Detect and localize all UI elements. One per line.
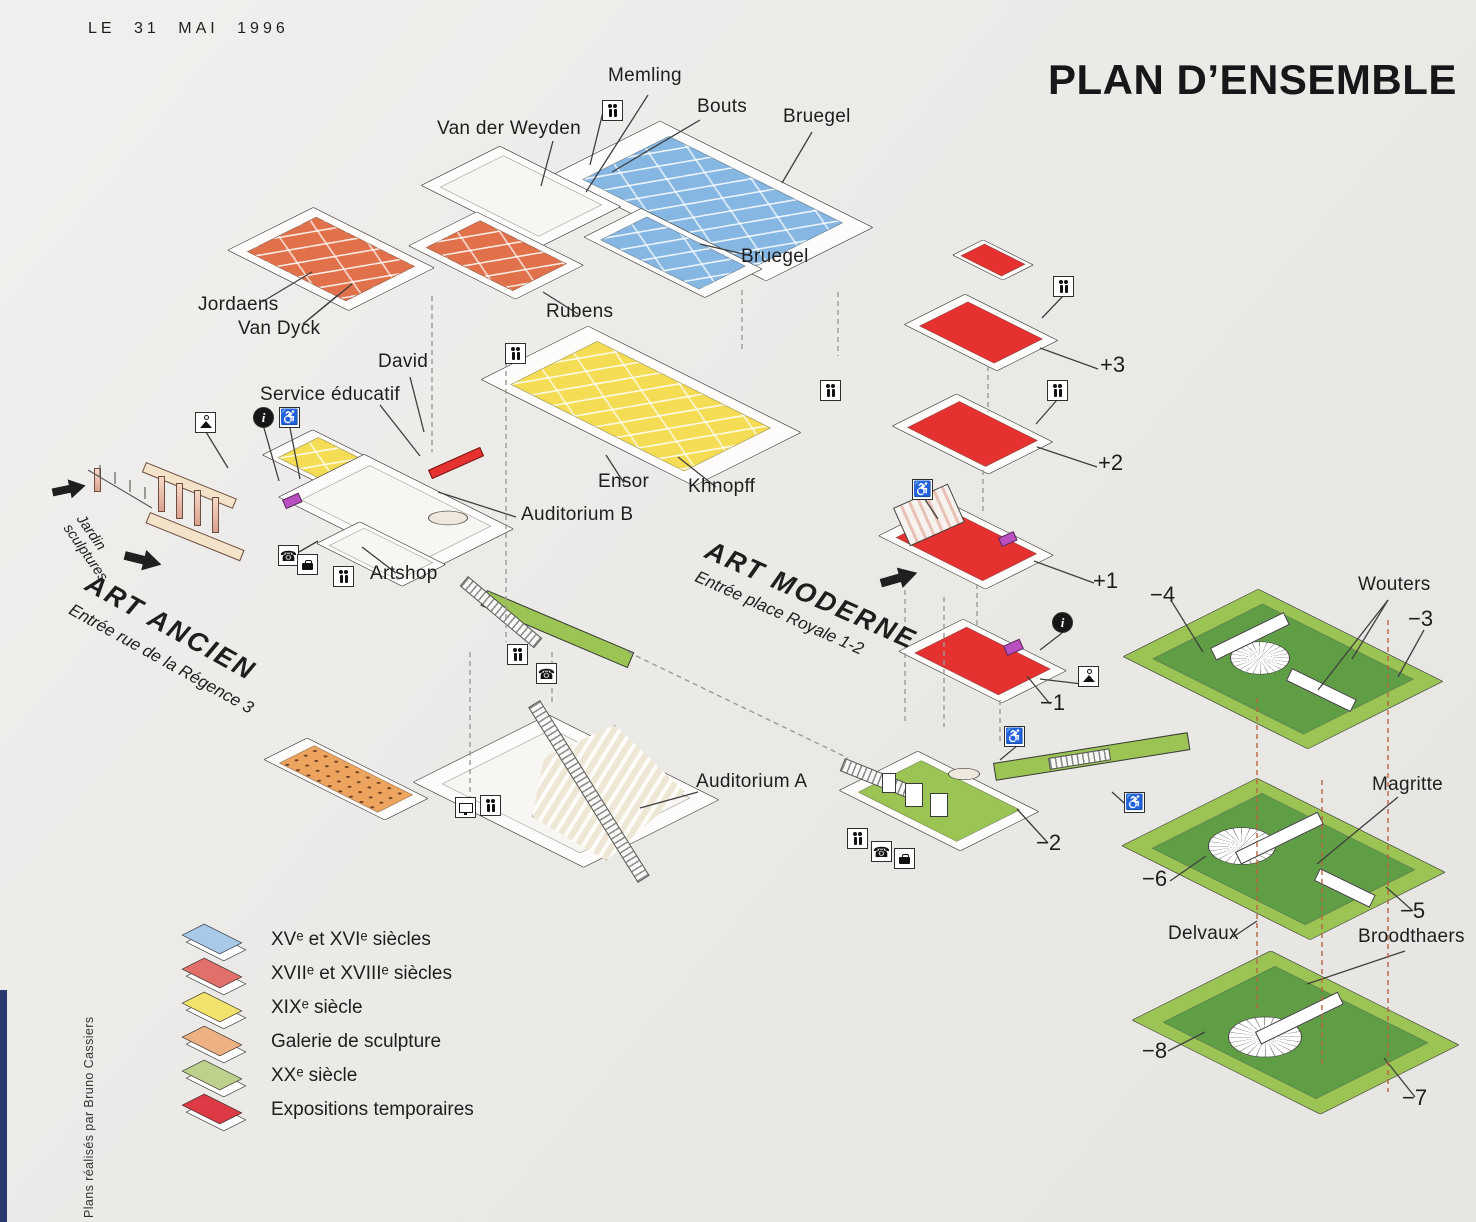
projection-icon	[455, 797, 476, 818]
floor-plus3-fill	[919, 301, 1044, 363]
person-glyph	[340, 575, 343, 583]
phone-icon: ☎	[871, 841, 892, 862]
wheelchair-icon: ♿	[1004, 726, 1025, 747]
room-label-bouts: Bouts	[697, 97, 747, 117]
wc-icon	[333, 566, 354, 587]
credit-line: Plans réalisés par Bruno Cassiers	[82, 1017, 96, 1218]
plan-densemble-page: LE 31 MAI 1996 PLAN D’ENSEMBLE Plans réa…	[0, 0, 1476, 1222]
bag-glyph	[302, 563, 313, 570]
facade-column	[212, 497, 219, 533]
person-glyph	[517, 352, 520, 360]
room-label-auditorium-b: Auditorium B	[521, 505, 633, 525]
room-label-delvaux: Delvaux	[1168, 924, 1239, 944]
sculpture-colonnade-floor	[279, 746, 412, 813]
page-title: PLAN D’ENSEMBLE	[1048, 56, 1457, 104]
room-label-artshop: Artshop	[370, 564, 438, 584]
floor-label-minus8: −8	[1142, 1038, 1167, 1064]
info-icon: i	[1052, 612, 1073, 633]
room-label-service-educatif: Service éducatif	[260, 385, 400, 405]
screen-glyph	[459, 803, 473, 813]
floor-plus3-plate	[904, 294, 1059, 371]
hanger-glyph	[1083, 675, 1095, 682]
room-label-bruegel-lower: Bruegel	[741, 247, 809, 267]
person-glyph	[1065, 285, 1068, 293]
person-glyph	[614, 109, 617, 117]
person-glyph	[487, 804, 490, 812]
phone-icon: ☎	[278, 545, 299, 566]
floor-label-minus4: −4	[1150, 582, 1175, 608]
person-glyph	[512, 352, 515, 360]
bag-glyph	[899, 857, 910, 864]
person-glyph	[609, 109, 612, 117]
expo-red-strip	[428, 447, 484, 479]
legend-label-expositions: Expositions temporaires	[271, 1099, 474, 1121]
sculpture-colonnade-plate	[263, 738, 428, 821]
room-label-jordaens: Jordaens	[198, 295, 279, 315]
person-glyph	[1059, 389, 1062, 397]
wc-icon	[602, 100, 623, 121]
person-glyph	[514, 653, 517, 661]
room-label-bruegel-top: Bruegel	[783, 107, 851, 127]
room-label-broodthaers: Broodthaers	[1358, 927, 1465, 947]
hanger-glyph	[200, 421, 212, 428]
floor-label-plus1: +1	[1093, 568, 1118, 594]
person-glyph	[1060, 285, 1063, 293]
shop-bag-icon	[297, 554, 318, 575]
room-label-magritte: Magritte	[1372, 775, 1443, 795]
floor-plus2-fill	[907, 401, 1037, 466]
person-glyph	[827, 389, 830, 397]
person-glyph	[854, 837, 857, 845]
floor-label-minus6: −6	[1142, 866, 1167, 892]
entrance-arrow-icon	[877, 561, 920, 595]
scan-edge-strip	[0, 990, 7, 1222]
wheelchair-icon: ♿	[912, 479, 933, 500]
minus2-partition	[930, 793, 948, 817]
garden-sculptures-label: Jardin sculptures	[60, 512, 131, 594]
magritte-floor	[1152, 793, 1416, 925]
floor-label-minus3: −3	[1408, 606, 1433, 632]
magritte-plate	[1121, 778, 1446, 940]
wc-icon	[820, 380, 841, 401]
auditorium-b-stage	[428, 511, 468, 525]
wc-icon	[507, 644, 528, 665]
person-glyph	[492, 804, 495, 812]
room-label-van-dyck: Van Dyck	[238, 319, 320, 339]
wc-icon	[480, 795, 501, 816]
room-label-khnopff: Khnopff	[688, 477, 755, 497]
minus2-rotunda	[948, 768, 980, 780]
floor-label-minus2: −2	[1036, 830, 1061, 856]
room-label-david: David	[378, 352, 428, 372]
wheelchair-icon: ♿	[279, 407, 300, 428]
facade-column	[158, 476, 165, 512]
floor-label-minus1: −1	[1040, 690, 1065, 716]
minus2-partition	[882, 773, 896, 793]
yellow-main-floor	[511, 341, 772, 471]
room-label-memling: Memling	[608, 66, 682, 86]
floor-label-minus5: −5	[1400, 898, 1425, 924]
legend: XVᵉ et XVIᵉ siècles XVIIᵉ et XVIIIᵉ sièc…	[185, 915, 525, 1125]
floor-minus1-fill	[914, 627, 1050, 695]
person-glyph	[345, 575, 348, 583]
legend-label-xvii-xviii: XVIIᵉ et XVIIIᵉ siècles	[271, 963, 452, 985]
floor-label-plus3: +3	[1100, 352, 1125, 378]
legend-label-xv-xvi: XVᵉ et XVIᵉ siècles	[271, 929, 431, 951]
person-glyph	[859, 837, 862, 845]
wc-icon	[505, 343, 526, 364]
room-label-van-der-weyden: Van der Weyden	[437, 119, 581, 139]
floor-label-minus7: −7	[1402, 1085, 1427, 1111]
room-label-rubens: Rubens	[546, 302, 613, 322]
wc-icon	[1047, 380, 1068, 401]
phone-icon: ☎	[536, 663, 557, 684]
garden-column	[94, 468, 101, 492]
room-label-ensor: Ensor	[598, 472, 649, 492]
person-glyph	[832, 389, 835, 397]
yellow-main-plate	[480, 326, 801, 487]
wc-icon	[847, 828, 868, 849]
moderne-roof-floor	[961, 244, 1026, 276]
person-glyph	[519, 653, 522, 661]
page-date: LE 31 MAI 1996	[88, 20, 289, 38]
person-glyph	[1054, 389, 1057, 397]
room-label-auditorium-a: Auditorium A	[696, 772, 807, 792]
wheelchair-icon: ♿	[1124, 792, 1145, 813]
info-icon: i	[253, 407, 274, 428]
orange-left-floor	[247, 217, 415, 301]
entrance-arrow-icon	[50, 475, 88, 504]
coatcheck-icon	[1078, 666, 1099, 687]
floor-label-plus2: +2	[1098, 450, 1123, 476]
floor-plus2-plate	[892, 394, 1054, 475]
room-label-wouters: Wouters	[1358, 575, 1431, 595]
legend-label-xx: XXᵉ siècle	[271, 1065, 357, 1087]
wc-icon	[1053, 276, 1074, 297]
minus2-partition	[905, 783, 923, 807]
moderne-roof-plate	[952, 239, 1034, 280]
legend-label-xix: XIXᵉ siècle	[271, 997, 363, 1019]
legend-swatch-expositions	[185, 1085, 259, 1133]
facade-beam	[142, 462, 237, 509]
legend-label-sculpture: Galerie de sculpture	[271, 1031, 441, 1053]
coatcheck-icon	[195, 412, 216, 433]
facade-column	[176, 483, 183, 519]
facade-column	[194, 490, 201, 526]
shop-bag-icon	[894, 848, 915, 869]
green-walkway	[480, 590, 634, 668]
